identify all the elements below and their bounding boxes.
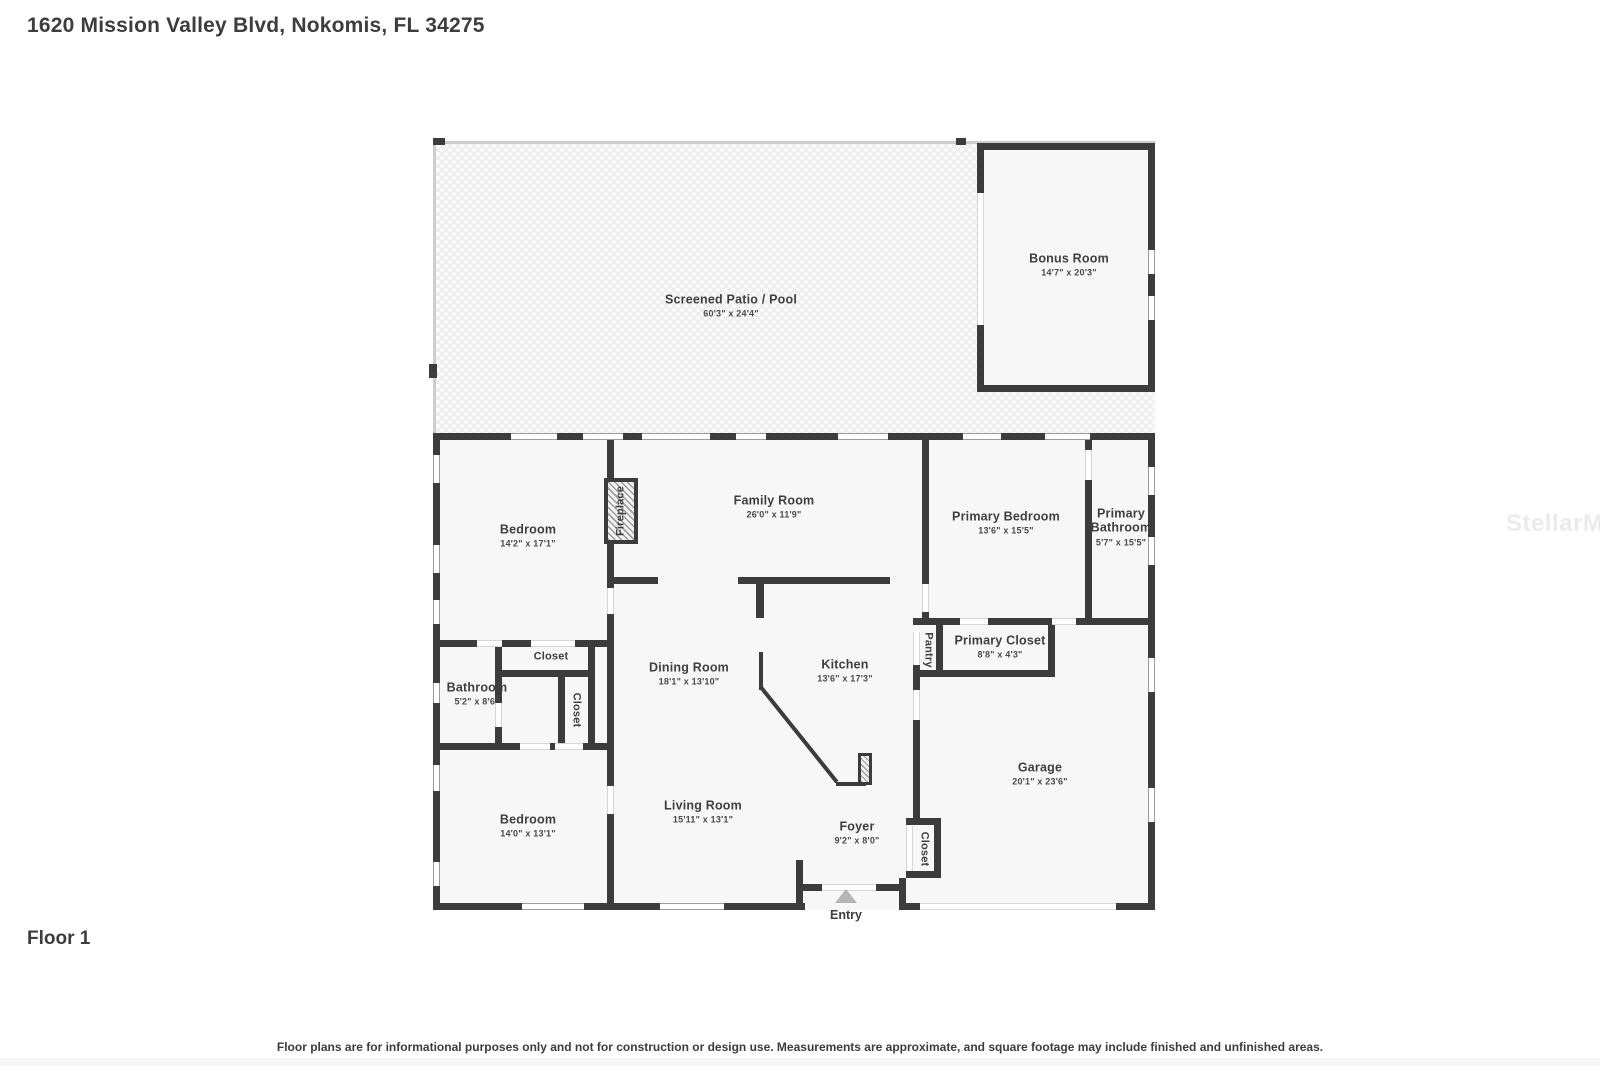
room-label-living-room: Living Room15'11" x 13'1"	[664, 799, 742, 826]
window-marker	[433, 455, 440, 483]
room-label-primary-closet: Primary Closet8'8" x 4'3"	[954, 634, 1045, 661]
door-opening	[555, 743, 583, 750]
window-marker	[963, 433, 1001, 440]
door-opening	[922, 584, 929, 612]
floorplan-page: { "header": { "title": "1620 Mission Val…	[0, 0, 1600, 1066]
wall-segment	[607, 814, 614, 910]
room-name: Primary Bathroom	[1079, 506, 1163, 535]
room-dimensions: 13'6" x 15'5"	[952, 526, 1060, 536]
wall-segment	[738, 577, 890, 584]
wall-segment	[977, 385, 1155, 392]
room-name: Primary Bedroom	[952, 510, 1060, 524]
disclaimer-text: Floor plans are for informational purpos…	[0, 1040, 1600, 1054]
room-label-bonus: Bonus Room14'7" x 20'3"	[1029, 252, 1109, 279]
appliance-box	[858, 753, 872, 785]
window-marker	[642, 433, 710, 440]
room-name: Pantry	[922, 632, 935, 667]
door-opening	[913, 632, 920, 665]
room-name: Fireplace	[615, 486, 628, 536]
door-opening	[607, 786, 614, 814]
room-name: Screened Patio / Pool	[665, 293, 797, 307]
room-name: Garage	[1012, 761, 1067, 775]
window-marker	[1148, 658, 1155, 692]
room-label-family-room: Family Room26'0" x 11'9"	[734, 494, 815, 521]
window-marker	[838, 433, 888, 440]
room-label-bathroom: Bathroom5'2" x 8'6"	[447, 681, 508, 708]
room-dimensions: 60'3" x 24'4"	[665, 309, 797, 319]
room-name: Closet	[918, 832, 931, 867]
room-dimensions: 15'11" x 13'1"	[664, 815, 742, 825]
wall-segment	[913, 665, 920, 690]
room-name: Primary Closet	[954, 634, 1045, 648]
room-dimensions: 14'7" x 20'3"	[1029, 268, 1109, 278]
entry-marker	[835, 889, 857, 903]
room-label-fireplace: Fireplace	[615, 486, 628, 536]
room-dimensions: 5'2" x 8'6"	[447, 697, 508, 707]
room-name: Living Room	[664, 799, 742, 813]
room-name: Dining Room	[649, 661, 729, 675]
screen-post	[429, 364, 437, 378]
window-marker	[1148, 296, 1155, 320]
wall-segment	[934, 818, 941, 878]
room-label-patio: Screened Patio / Pool60'3" x 24'4"	[665, 293, 797, 320]
entry-label: Entry	[830, 908, 862, 922]
wall-segment	[607, 614, 614, 750]
wall-segment	[796, 884, 824, 891]
wall-segment	[433, 433, 440, 910]
room-label-dining-room: Dining Room18'1" x 13'10"	[649, 661, 729, 688]
window-marker	[1148, 788, 1155, 822]
window-marker	[660, 903, 724, 910]
wall-segment	[1085, 440, 1092, 450]
room-dimensions: 14'0" x 13'1"	[500, 829, 556, 839]
door-opening	[906, 826, 913, 871]
room-dimensions: 26'0" x 11'9"	[734, 510, 815, 520]
door-opening	[520, 743, 550, 750]
room-name: Bedroom	[500, 523, 556, 537]
door-opening	[977, 193, 984, 325]
wall-segment	[607, 440, 614, 478]
watermark: StellarMLS	[1506, 510, 1600, 538]
wall-segment	[433, 903, 805, 910]
room-name: Family Room	[734, 494, 815, 508]
wall-segment	[607, 544, 614, 588]
wall-segment	[558, 677, 565, 750]
counter-wall	[759, 652, 763, 690]
door-opening	[531, 640, 575, 647]
door-opening	[913, 690, 920, 720]
room-dimensions: 14'2" x 17'1"	[500, 539, 556, 549]
window-marker	[511, 433, 557, 440]
door-opening	[607, 588, 614, 614]
room-label-foyer: Foyer9'2" x 8'0"	[834, 820, 879, 847]
wall-segment	[977, 143, 1155, 150]
footer-strip	[0, 1058, 1600, 1066]
wall-segment	[906, 871, 941, 878]
wall-segment	[614, 577, 658, 584]
room-label-primary-bathroom: Primary Bathroom5'7" x 15'5"	[1079, 506, 1163, 547]
window-marker	[736, 433, 766, 440]
door-opening	[1052, 618, 1076, 625]
window-marker	[1045, 433, 1090, 440]
room-dimensions: 18'1" x 13'10"	[649, 677, 729, 687]
room-name: Bedroom	[500, 813, 556, 827]
room-label-closet-hall: Closet	[534, 651, 569, 664]
room-dimensions: 9'2" x 8'0"	[834, 836, 879, 846]
door-opening	[960, 618, 988, 625]
wall-segment	[607, 750, 614, 786]
room-label-bedroom-bottom: Bedroom14'0" x 13'1"	[500, 813, 556, 840]
floor-label: Floor 1	[27, 928, 90, 950]
room-dimensions: 20'1" x 23'6"	[1012, 777, 1067, 787]
window-marker	[433, 862, 440, 886]
wall-segment	[1048, 618, 1055, 677]
window-marker	[522, 903, 584, 910]
room-name: Bathroom	[447, 681, 508, 695]
room-label-garage: Garage20'1" x 23'6"	[1012, 761, 1067, 788]
window-marker	[433, 683, 440, 703]
window-marker	[433, 545, 440, 573]
screen-wall	[433, 141, 436, 433]
wall-segment	[913, 670, 1055, 677]
wall-segment	[913, 618, 1155, 625]
room-label-closet-vert: Closet	[570, 693, 583, 728]
room-label-primary-bedroom: Primary Bedroom13'6" x 15'5"	[952, 510, 1060, 537]
window-marker	[433, 765, 440, 791]
wall-segment	[913, 720, 920, 818]
wall-segment	[922, 440, 929, 584]
room-label-kitchen: Kitchen13'6" x 17'3"	[817, 658, 872, 685]
wall-segment	[977, 325, 984, 392]
window-marker	[433, 600, 440, 624]
window-marker	[1148, 250, 1155, 274]
window-marker	[583, 433, 623, 440]
door-opening	[477, 640, 502, 647]
room-name: Closet	[534, 651, 569, 664]
door-opening	[1085, 450, 1092, 480]
screen-post	[956, 138, 966, 145]
room-dimensions: 5'7" x 15'5"	[1079, 537, 1163, 547]
wall-segment	[1085, 480, 1092, 625]
room-label-closet-foyer: Closet	[918, 832, 931, 867]
room-label-bedroom-top: Bedroom14'2" x 17'1"	[500, 523, 556, 550]
room-name: Foyer	[834, 820, 879, 834]
wall-segment	[756, 584, 764, 618]
room-dimensions: 13'6" x 17'3"	[817, 674, 872, 684]
wall-segment	[977, 143, 984, 193]
wall-segment	[588, 640, 595, 750]
room-name: Kitchen	[817, 658, 872, 672]
room-dimensions: 8'8" x 4'3"	[954, 650, 1045, 660]
wall-segment	[433, 640, 614, 647]
room-name: Closet	[570, 693, 583, 728]
floorplan-canvas: Screened Patio / Pool60'3" x 24'4"Bonus …	[0, 0, 1600, 1066]
screen-post	[433, 138, 445, 145]
room-label-pantry: Pantry	[922, 632, 935, 667]
door-opening	[920, 903, 1116, 910]
room-name: Bonus Room	[1029, 252, 1109, 266]
window-marker	[1148, 467, 1155, 495]
wall-segment	[495, 670, 595, 677]
